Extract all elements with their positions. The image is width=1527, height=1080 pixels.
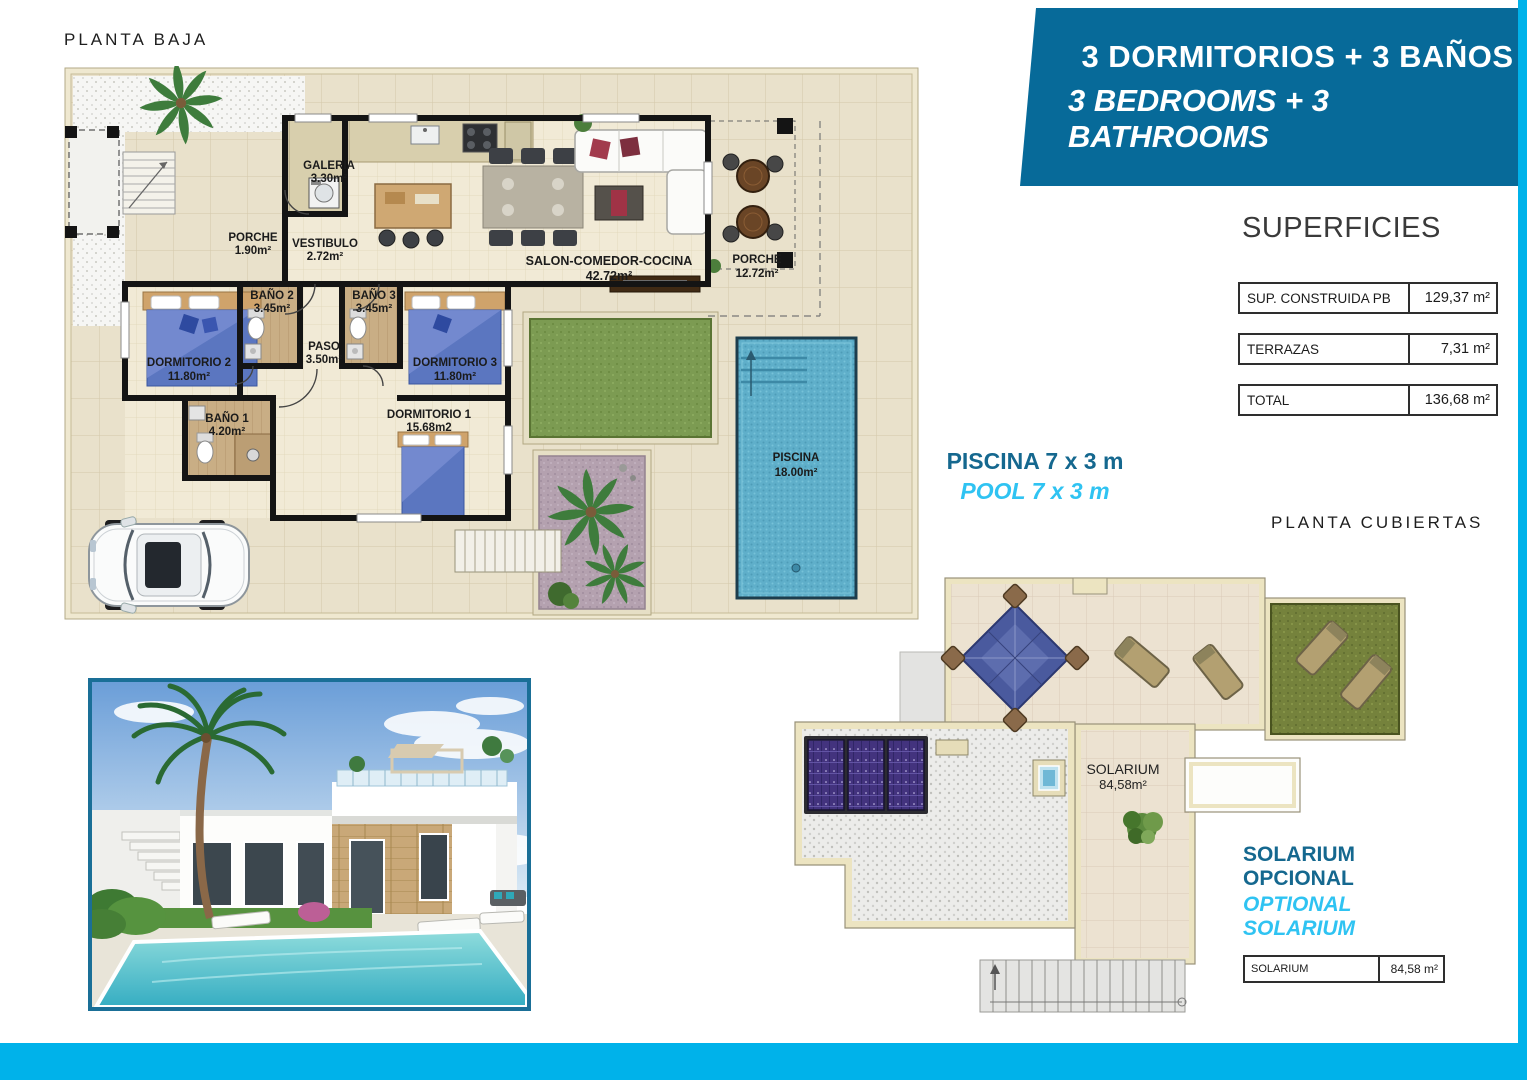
skylight — [1033, 760, 1065, 796]
pool-note: PISCINA 7 x 3 m POOL 7 x 3 m — [918, 448, 1152, 505]
ground-floor-title: PLANTA BAJA — [64, 30, 208, 50]
photo-pool — [96, 931, 527, 1007]
entry-porch — [65, 126, 119, 238]
roof-stairs — [980, 960, 1186, 1012]
svg-text:PORCHE: PORCHE — [732, 254, 782, 266]
dining-set — [483, 148, 583, 246]
svg-text:42.72m²: 42.72m² — [586, 269, 633, 283]
svg-text:15.68m2: 15.68m2 — [406, 422, 451, 434]
svg-text:1.90m²: 1.90m² — [235, 245, 272, 257]
pool-note-en: POOL 7 x 3 m — [918, 478, 1152, 505]
room-label-galeria: GALERIA 3.30m² — [303, 160, 355, 185]
svg-text:2.72m²: 2.72m² — [307, 251, 344, 263]
svg-text:SALON-COMEDOR-COCINA: SALON-COMEDOR-COCINA — [526, 254, 693, 268]
banner-line-es: 3 DORMITORIOS + 3 BAÑOS — [1081, 39, 1513, 75]
pool-note-es: PISCINA 7 x 3 m — [918, 448, 1152, 475]
svg-text:4.20m²: 4.20m² — [209, 426, 246, 438]
svg-text:GALERIA: GALERIA — [303, 160, 355, 172]
svg-text:11.80m²: 11.80m² — [168, 371, 210, 383]
superficies-section: SUPERFICIES SUP. CONSTRUIDA PB 129,37 m²… — [1238, 212, 1498, 416]
svg-text:18.00m²: 18.00m² — [775, 467, 818, 479]
bedrooms-banner: 3 DORMITORIOS + 3 BAÑOS 3 BEDROOMS + 3 B… — [1020, 8, 1527, 186]
roof-plan-title: PLANTA CUBIERTAS — [1271, 513, 1483, 533]
superficies-title: SUPERFICIES — [1242, 212, 1498, 245]
car-icon — [89, 516, 249, 614]
bed-dormitorio1 — [398, 432, 468, 517]
villa-photo-render — [92, 682, 527, 1007]
superficies-row-construida: SUP. CONSTRUIDA PB 129,37 m² — [1238, 282, 1498, 314]
entry-stairs — [123, 152, 175, 214]
svg-text:3.30m²: 3.30m² — [311, 173, 348, 185]
svg-text:PASO: PASO — [308, 341, 340, 353]
brochure-page: 3 DORMITORIOS + 3 BAÑOS 3 BEDROOMS + 3 B… — [0, 0, 1527, 1080]
roof-tiles-lower — [1075, 724, 1195, 964]
svg-text:12.72m²: 12.72m² — [736, 268, 779, 280]
solarium-note-en: OPTIONAL SOLARIUM — [1243, 893, 1455, 941]
svg-text:DORMITORIO 2: DORMITORIO 2 — [147, 357, 231, 369]
superficies-row-total: TOTAL 136,68 m² — [1238, 384, 1498, 416]
svg-text:3.45m²: 3.45m² — [356, 303, 393, 315]
svg-text:DORMITORIO 3: DORMITORIO 3 — [413, 357, 497, 369]
roof-terrace — [1185, 758, 1300, 812]
villa-photo — [88, 678, 531, 1011]
superficies-row-terrazas: TERRAZAS 7,31 m² — [1238, 333, 1498, 365]
svg-text:VESTIBULO: VESTIBULO — [292, 238, 358, 250]
solar-panels — [804, 736, 928, 814]
svg-text:BAÑO 1: BAÑO 1 — [205, 412, 249, 425]
svg-text:SOLARIUM: SOLARIUM — [1086, 761, 1159, 777]
svg-text:3.50m²: 3.50m² — [306, 354, 343, 366]
solarium-table: SOLARIUM 84,58 m² — [1243, 955, 1445, 983]
roof-side-step — [900, 652, 945, 722]
svg-text:84,58m²: 84,58m² — [1099, 777, 1147, 792]
solarium-note-es: SOLARIUM OPCIONAL — [1243, 843, 1455, 891]
room-label-porche-entrada: PORCHE 1.90m² — [228, 232, 278, 257]
svg-text:DORMITORIO 1: DORMITORIO 1 — [387, 409, 472, 421]
floor-plan: GALERIA 3.30m² PORCHE 1.90m² VESTIBULO 2… — [63, 66, 920, 622]
svg-text:BAÑO 3: BAÑO 3 — [352, 289, 395, 302]
garden-stairs — [455, 530, 561, 572]
svg-text:11.80m²: 11.80m² — [434, 371, 476, 383]
svg-text:BAÑO 2: BAÑO 2 — [250, 289, 293, 302]
right-accent-bar — [1518, 0, 1527, 1080]
svg-text:3.45m²: 3.45m² — [254, 303, 291, 315]
bottom-accent-bar — [0, 1043, 1527, 1080]
solarium-note: SOLARIUM OPCIONAL OPTIONAL SOLARIUM SOLA… — [1243, 843, 1455, 983]
room-label-paso: PASO 3.50m² — [306, 341, 343, 366]
kitchen-island — [375, 184, 451, 248]
banner-line-en: 3 BEDROOMS + 3 BATHROOMS — [1068, 83, 1527, 155]
svg-text:PISCINA: PISCINA — [773, 452, 820, 464]
svg-text:PORCHE: PORCHE — [228, 232, 278, 244]
garden-lawn — [523, 312, 718, 444]
